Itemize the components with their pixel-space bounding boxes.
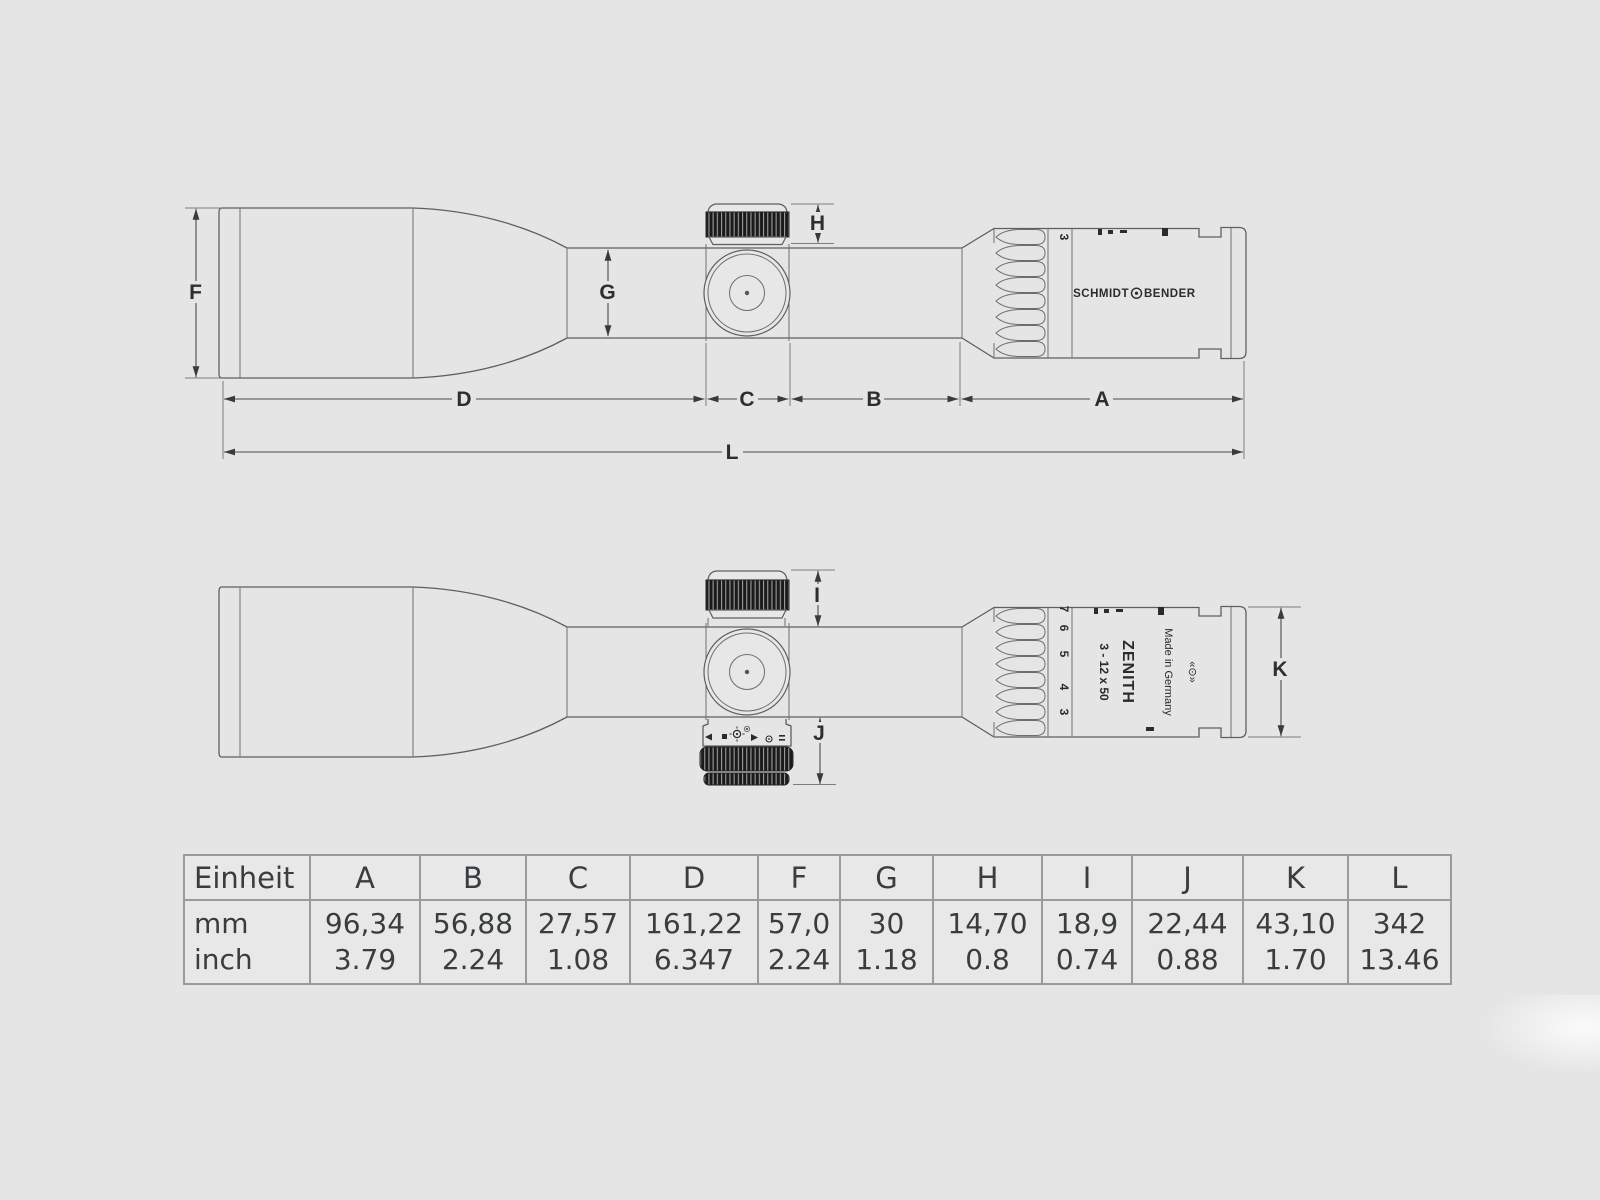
table-header-K: K [1243, 855, 1348, 900]
brand-right-text: BENDER [1144, 288, 1196, 300]
illumination-base-ring [704, 773, 789, 785]
turret-cap-lip [709, 237, 786, 245]
scan-smudge [1480, 995, 1600, 1075]
zoom-scale-numbers: 3 4 5 6 7 [1057, 606, 1071, 716]
illumination-symbols [705, 727, 785, 743]
table-value-G: 301.18 [840, 900, 933, 984]
dimension-L: L [224, 441, 1243, 464]
spec-text: 3 - 12 x 50 [1097, 643, 1111, 701]
dim-h-label: H [810, 212, 825, 235]
table-value-B: 56,882.24 [420, 900, 526, 984]
dimension-G: G [599, 250, 616, 336]
table-value-A: 96,343.79 [310, 900, 420, 984]
table-header-H: H [933, 855, 1042, 900]
dot-icon [722, 734, 727, 739]
dim-b-label: B [866, 388, 881, 411]
turret-knurl-band [706, 212, 789, 237]
table-header-A: A [310, 855, 420, 900]
origin-text: Made in Germany [1162, 628, 1174, 716]
arrow-left-icon [705, 734, 712, 741]
model-text: ZENITH [1119, 640, 1136, 704]
table-header-J: J [1132, 855, 1243, 900]
dim-f-label: F [189, 281, 202, 304]
dim-j-label: J [813, 722, 825, 745]
elevation-turret-dome [708, 204, 787, 212]
turret-knurl-band-2 [706, 580, 789, 610]
table-value-D: 161,226.347 [630, 900, 758, 984]
dimensions-table: Einheit A B C D F G H I J K L mm inch 96… [183, 854, 1452, 985]
dimension-K: K [1248, 607, 1301, 737]
schmidt-bender-logo-icon [1132, 288, 1142, 298]
illumination-housing [703, 719, 791, 746]
page-background: SCHMIDT BENDER 3 F G [0, 0, 1600, 1200]
dim-k-label: K [1272, 658, 1287, 681]
bottom-view-drawing: 3 4 5 6 7 3 - 12 x 50 ZENITH Made in Ger… [219, 570, 1301, 785]
arrow-right-icon [751, 734, 758, 741]
table-header-B: B [420, 855, 526, 900]
turret-cap-lip-2 [709, 610, 786, 618]
illumination-index-dot [744, 726, 749, 731]
magnification-number: 3 [1057, 234, 1071, 241]
dimension-I: I [791, 570, 835, 626]
table-values-row: mm inch 96,343.79 56,882.24 27,571.08 16… [184, 900, 1451, 984]
table-header-F: F [758, 855, 840, 900]
dim-g-label: G [599, 281, 615, 304]
table-value-H: 14,700.8 [933, 900, 1042, 984]
top-view-drawing: SCHMIDT BENDER 3 F G [185, 204, 1246, 464]
dim-i-label: I [814, 584, 820, 607]
svg-text:3: 3 [1057, 709, 1071, 716]
table-header-unit: Einheit [184, 855, 310, 900]
dimension-J: J [793, 718, 836, 785]
brightness-icon [730, 727, 745, 742]
illumination-turret [700, 719, 793, 785]
table-value-K: 43,101.70 [1243, 900, 1348, 984]
svg-text:5: 5 [1057, 651, 1071, 658]
dimension-H: H [791, 204, 834, 244]
table-value-F: 57,02.24 [758, 900, 840, 984]
table-value-J: 22,440.88 [1132, 900, 1243, 984]
table-header-row: Einheit A B C D F G H I J K L [184, 855, 1451, 900]
eyepiece-body-texts: 3 - 12 x 50 ZENITH Made in Germany «⊙» [1097, 628, 1198, 716]
body-index-marks [1098, 228, 1168, 236]
table-header-C: C [526, 855, 630, 900]
elevation-turret-dome-2 [708, 571, 787, 580]
svg-text:7: 7 [1057, 606, 1071, 613]
table-header-L: L [1348, 855, 1451, 900]
dim-d-label: D [456, 388, 471, 411]
illumination-knurl-ring [700, 747, 793, 771]
table-value-L: 34213.46 [1348, 900, 1451, 984]
dimension-F: F [185, 208, 221, 378]
battery-cap-icon [766, 736, 772, 742]
table-header-I: I [1042, 855, 1132, 900]
table-value-C: 27,571.08 [526, 900, 630, 984]
dim-l-label: L [726, 441, 739, 464]
table-header-D: D [630, 855, 758, 900]
table-value-I: 18,90.74 [1042, 900, 1132, 984]
emblem-mark: «⊙» [1186, 661, 1198, 682]
table-unit-cell: mm inch [184, 900, 310, 984]
table-header-G: G [840, 855, 933, 900]
svg-text:6: 6 [1057, 625, 1071, 632]
scope-technical-drawing: SCHMIDT BENDER 3 F G [0, 0, 1600, 815]
brand-logo: SCHMIDT BENDER [1073, 288, 1196, 300]
dim-c-label: C [739, 388, 754, 411]
brand-left-text: SCHMIDT [1073, 288, 1129, 300]
dim-a-label: A [1094, 388, 1109, 411]
svg-text:4: 4 [1057, 684, 1071, 691]
